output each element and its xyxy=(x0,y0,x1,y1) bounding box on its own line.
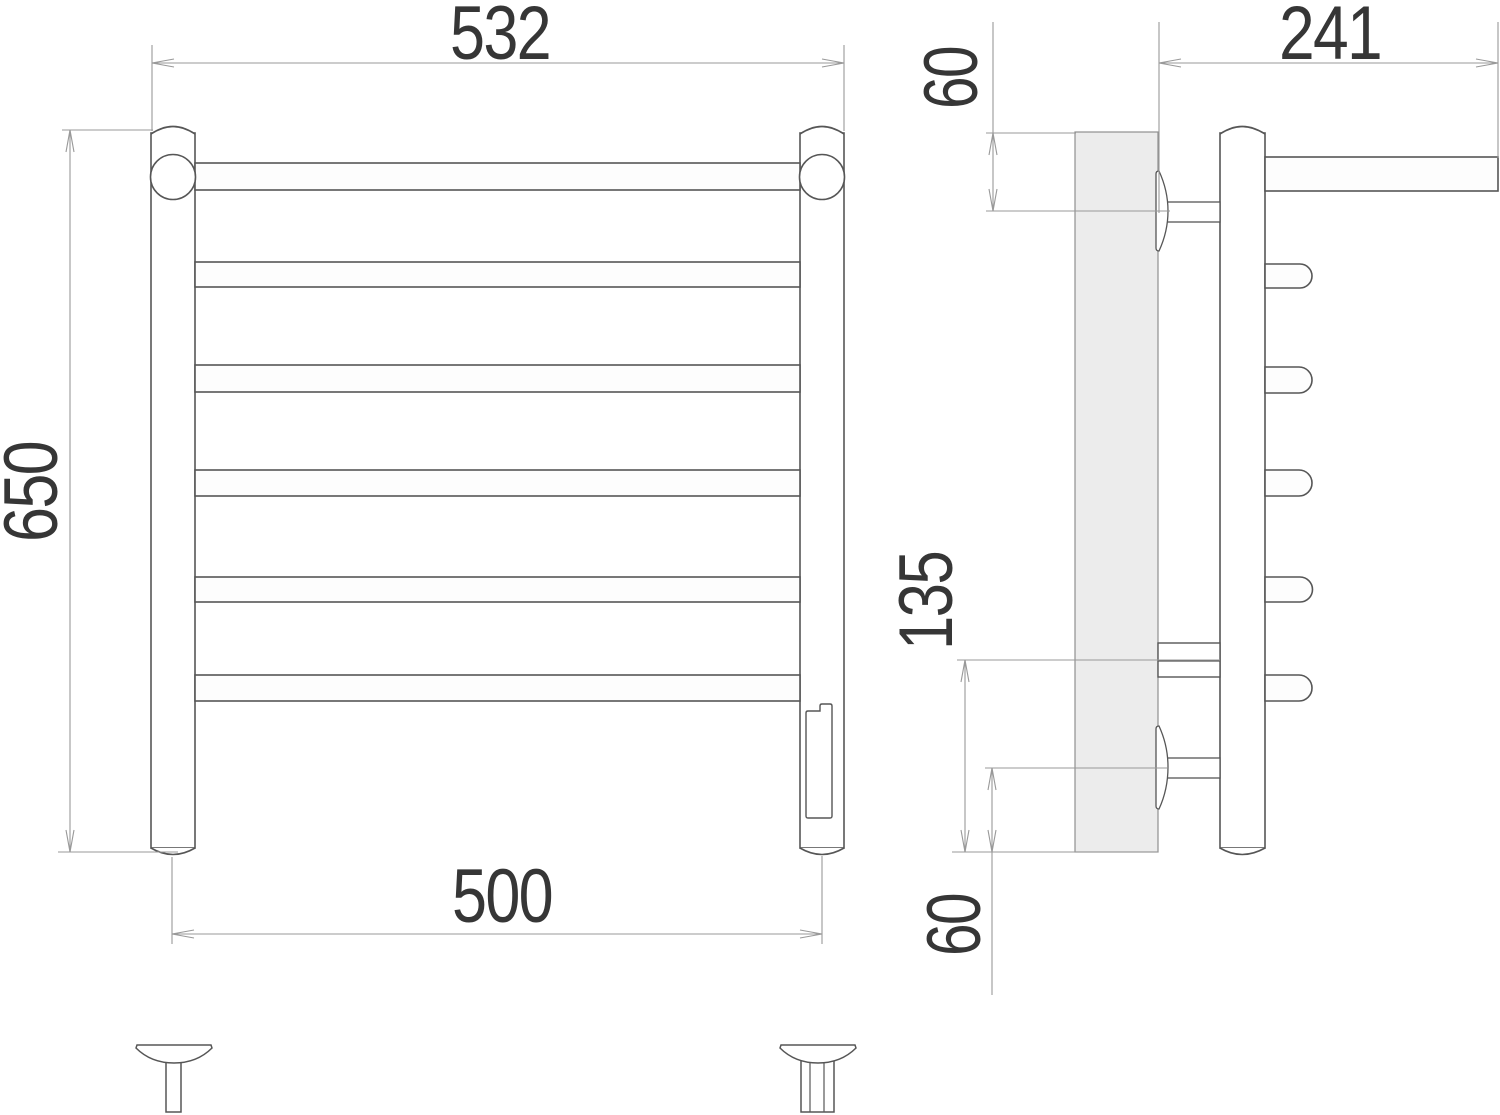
lower-foot-stem xyxy=(1167,758,1220,778)
peg-3 xyxy=(1265,470,1312,496)
control-box xyxy=(806,704,832,818)
wall-plate xyxy=(1075,132,1158,852)
front-left-post xyxy=(151,127,195,855)
dim-241-label: 241 xyxy=(1279,0,1381,76)
front-right-post-top-cap xyxy=(800,127,844,135)
side-post-body xyxy=(1220,133,1265,848)
rung-5 xyxy=(195,577,800,602)
technical-drawing-page: 532 650 500 241 60 135 60 xyxy=(0,0,1500,1115)
peg-2 xyxy=(1265,367,1312,393)
front-left-post-top-cap xyxy=(151,127,195,135)
dim-60-top-label: 60 xyxy=(909,47,994,109)
foot-detail-right xyxy=(780,1045,856,1112)
side-post-bottom-cap xyxy=(1220,848,1265,855)
rung-2 xyxy=(195,262,800,287)
peg-5 xyxy=(1265,675,1312,701)
dim-135-label: 135 xyxy=(884,552,969,650)
foot-left-stem xyxy=(166,1058,181,1112)
rung-4 xyxy=(195,470,800,496)
foot-detail-left xyxy=(136,1045,212,1112)
side-post-top-cap xyxy=(1220,127,1265,135)
peg-4 xyxy=(1265,577,1313,602)
rung-1 xyxy=(195,163,800,190)
front-left-post-body xyxy=(151,133,195,848)
mounting-foot-details xyxy=(136,1045,856,1112)
front-left-post-bottom-cap xyxy=(151,848,195,855)
dim-60-bottom-label: 60 xyxy=(912,894,997,956)
side-post xyxy=(1220,127,1265,855)
peg-1 xyxy=(1265,264,1312,288)
side-view xyxy=(1075,127,1498,855)
ball-joint-right xyxy=(800,155,845,200)
dim-500-label: 500 xyxy=(452,854,552,939)
foot-right-stem xyxy=(801,1058,834,1112)
front-view xyxy=(151,127,845,855)
dim-532-label: 532 xyxy=(450,0,550,76)
foot-left-cap xyxy=(136,1045,212,1063)
upper-foot-stem xyxy=(1167,202,1220,222)
front-right-post-bottom-cap xyxy=(800,848,844,855)
towel-rail-drawing: 532 650 500 241 60 135 60 xyxy=(0,0,1500,1115)
rung-3 xyxy=(195,365,800,392)
ball-joint-left xyxy=(151,155,196,200)
dim-650-label: 650 xyxy=(0,442,74,542)
side-top-bar xyxy=(1265,157,1498,191)
rung-6 xyxy=(195,675,800,701)
foot-right-cap xyxy=(780,1045,856,1063)
